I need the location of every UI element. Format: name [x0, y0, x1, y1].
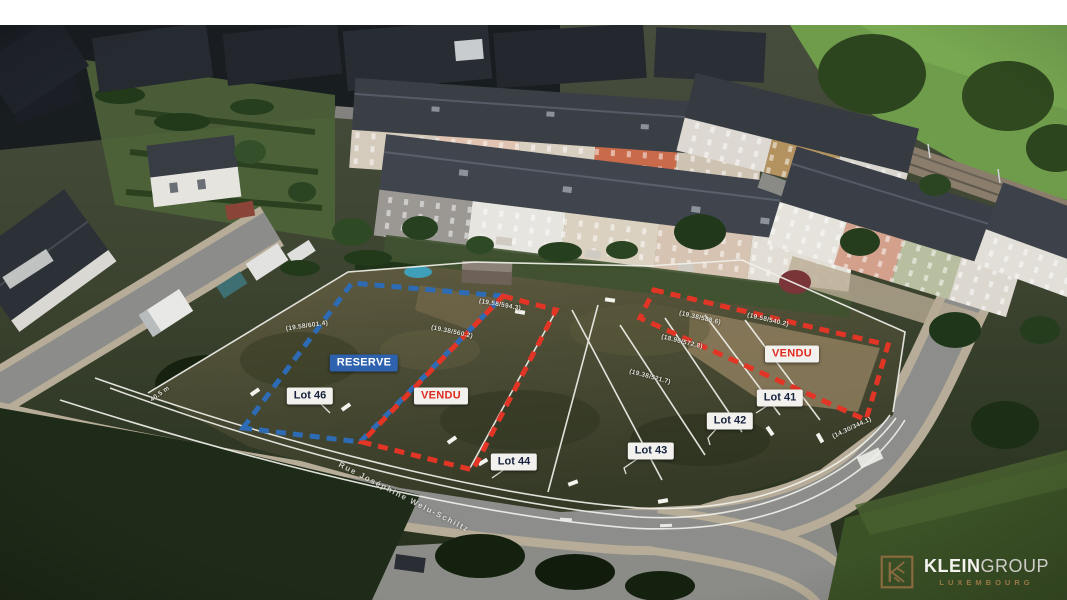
aerial-photo-stage: RESERVE VENDU VENDU Lot 46 Lot 44 Lot 43… [0, 0, 1067, 600]
vignette [0, 25, 1067, 600]
aerial-photo [0, 25, 1067, 600]
vendu-right-status-label: VENDU [765, 346, 819, 363]
brand-name-light: GROUP [980, 556, 1049, 576]
brand-name: KLEINGROUP [924, 557, 1049, 575]
lot-46-label: Lot 46 [287, 388, 333, 405]
lot-43-label: Lot 43 [628, 443, 674, 460]
lot-44-label: Lot 44 [491, 454, 537, 471]
reserve-status-label: RESERVE [330, 355, 398, 372]
top-white-bar [0, 0, 1067, 25]
kleingroup-logo: KLEINGROUP LUXEMBOURG [879, 554, 1049, 590]
brand-location: LUXEMBOURG [939, 578, 1033, 587]
brand-name-bold: KLEIN [924, 556, 981, 576]
lot-42-label: Lot 42 [707, 413, 753, 430]
lot-41-label: Lot 41 [757, 390, 803, 407]
kleingroup-logo-icon [879, 554, 915, 590]
vendu-left-status-label: VENDU [414, 388, 468, 405]
